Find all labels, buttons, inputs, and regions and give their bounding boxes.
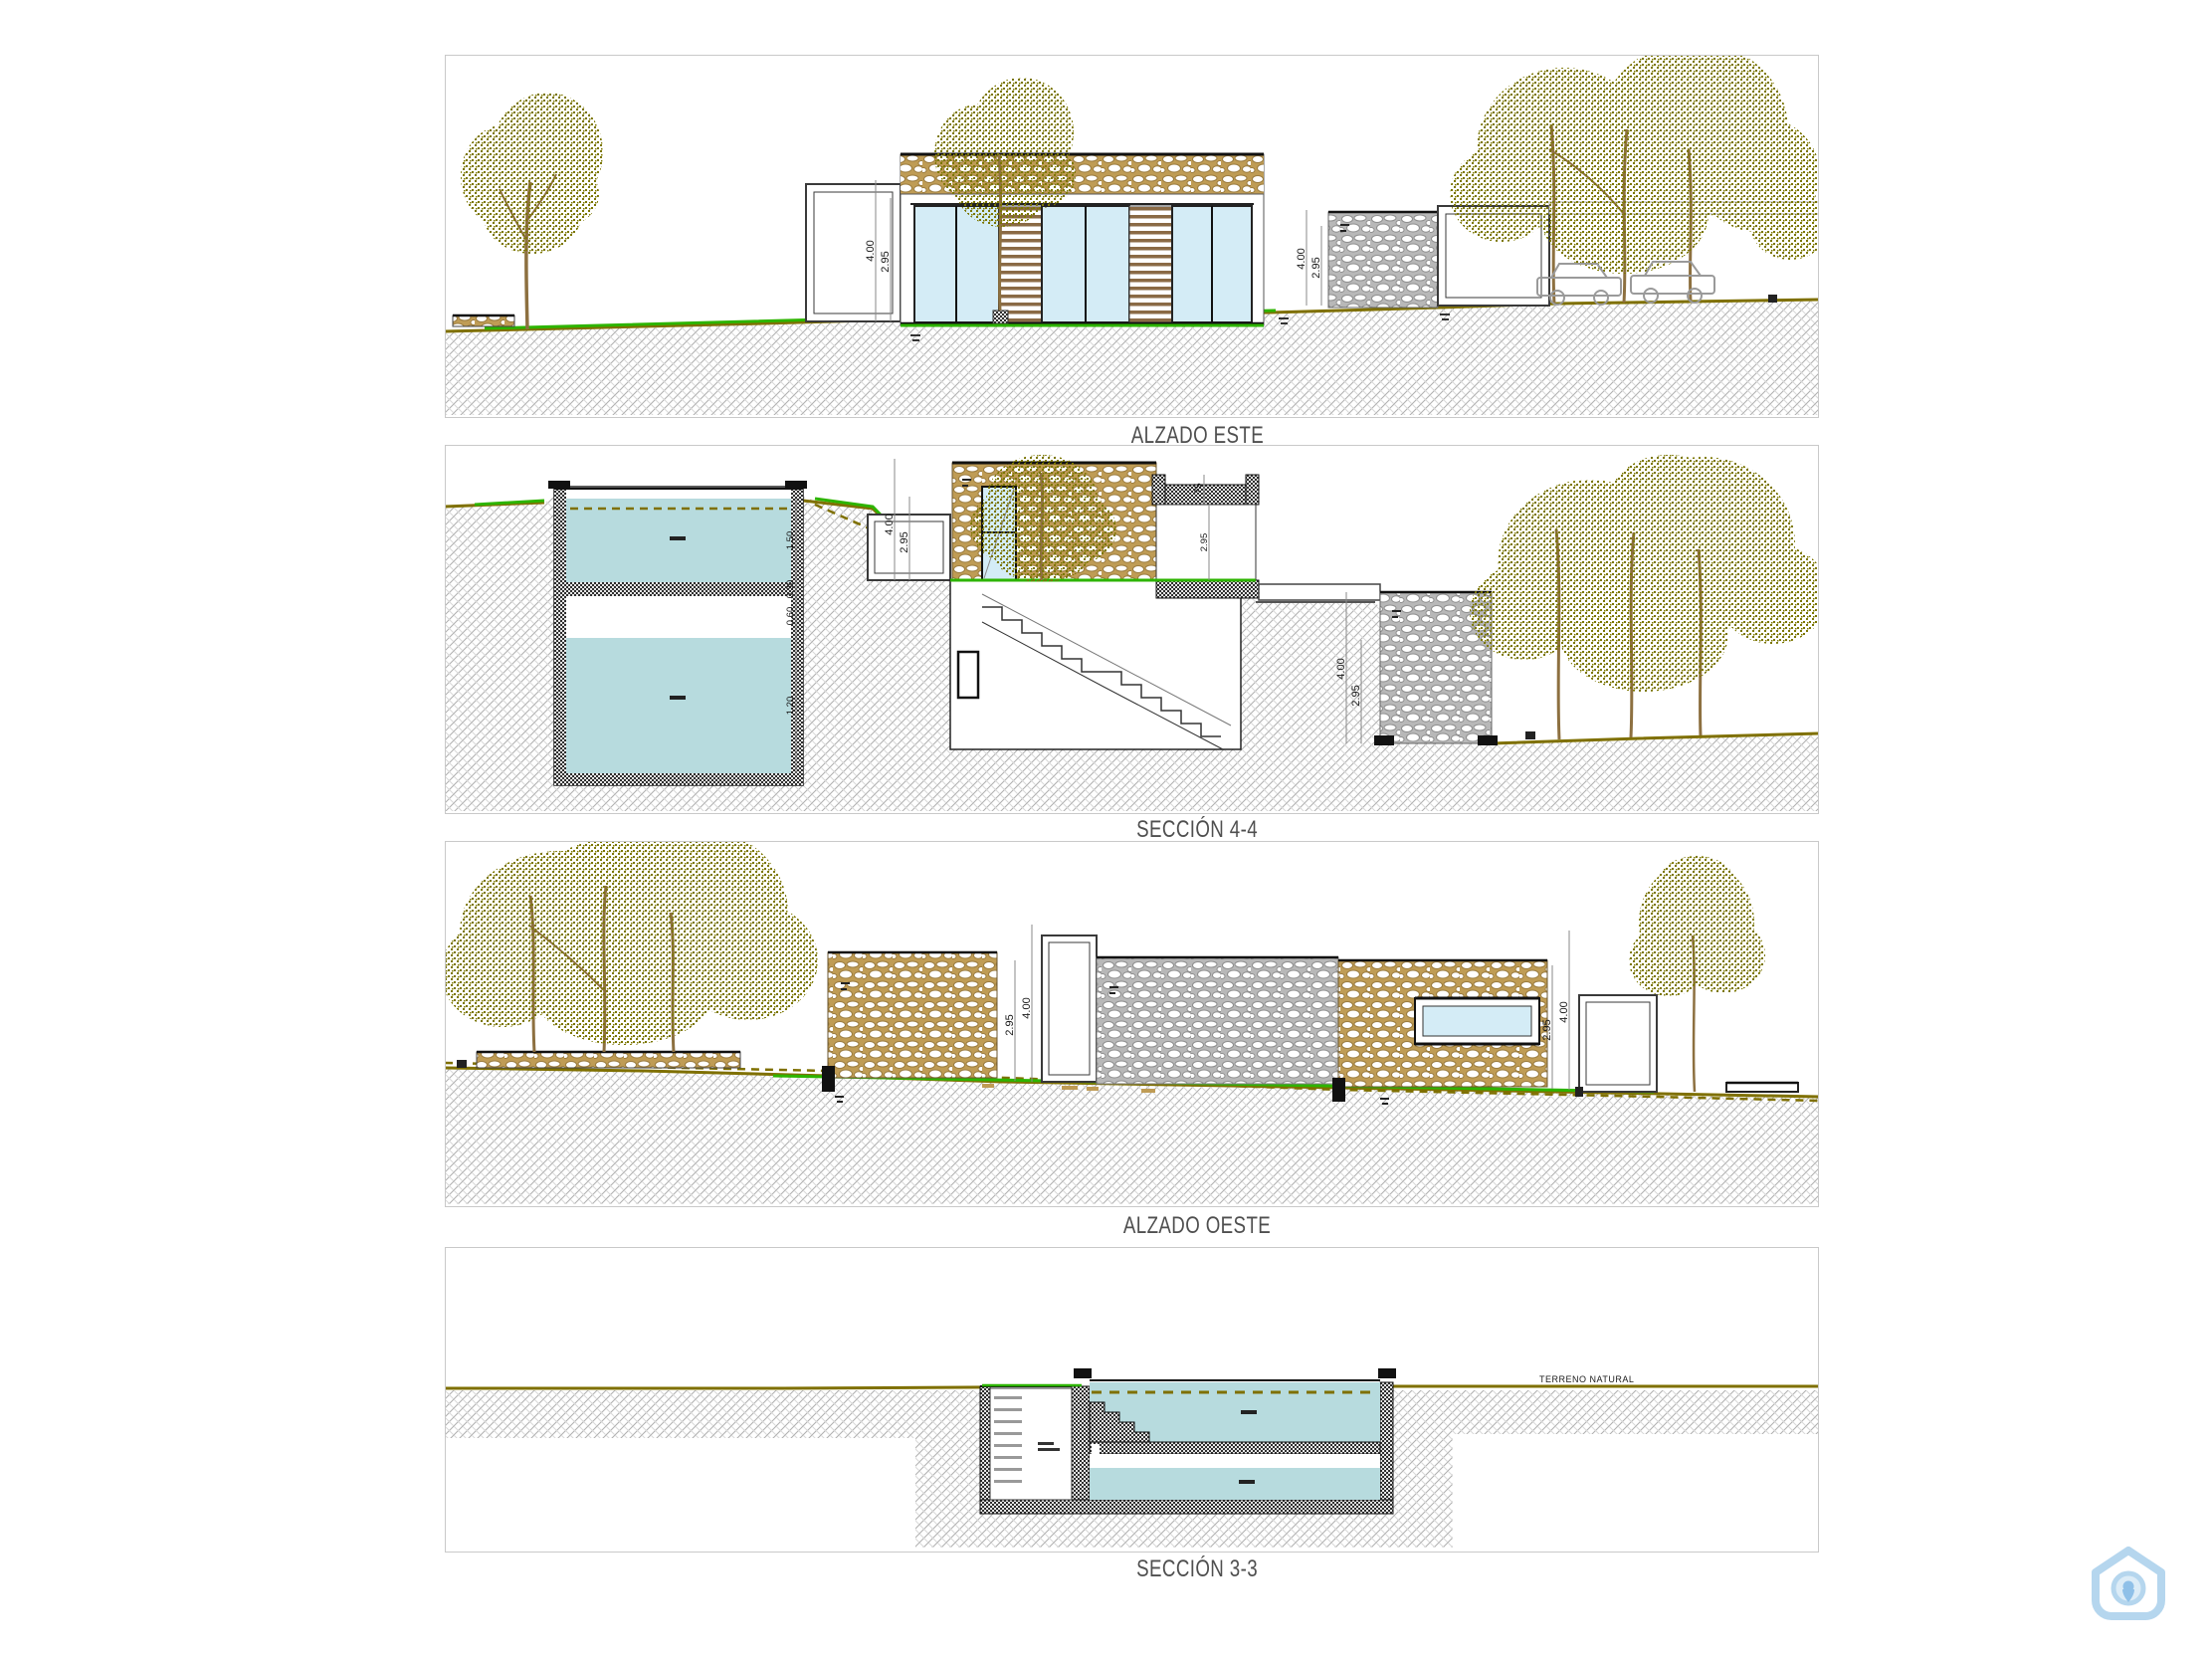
stone-wall-gray: [1097, 957, 1338, 1084]
floor-slab: [1156, 580, 1259, 598]
panel-alzado-este: 4.00 2.95: [445, 55, 1819, 418]
dimension-label: 1.50: [785, 531, 796, 550]
dimension-right: 4.00 2.95: [1296, 210, 1322, 306]
basement-section: [950, 580, 1241, 749]
drawing-sheet: 4.00 2.95: [0, 0, 2212, 1659]
panel-title: SECCIÓN 3-3: [510, 1555, 1885, 1583]
dimension-label: 2.95: [1310, 257, 1322, 278]
tree-planter: [993, 311, 1008, 323]
watermark-logo-icon: [2086, 1539, 2171, 1624]
dimension-label: 4.00: [1335, 658, 1347, 679]
roof-slab: [1156, 485, 1256, 505]
machine-chamber: [990, 1388, 1072, 1500]
window-glass: [1423, 1006, 1531, 1036]
bollard: [1768, 295, 1777, 303]
mid-slab: [1090, 1442, 1380, 1454]
bench-right: [1726, 1083, 1798, 1092]
seccion-3-3-drawing: TERRENO NATURAL: [445, 1247, 1819, 1553]
planter: [477, 1052, 740, 1068]
porch-frame: [1575, 995, 1657, 1097]
tree: [461, 93, 603, 329]
dimension-label: 4.00: [1558, 1001, 1570, 1022]
pool-section: [980, 1368, 1396, 1514]
dimension-label: 1.20: [785, 697, 796, 716]
dimension-label: 2.95: [880, 251, 892, 272]
tiny-label-mark: [670, 696, 686, 700]
panel-title: SECCIÓN 4-4: [510, 816, 1885, 844]
dimension-label: .75: [1193, 483, 1204, 496]
dimension-label: 2.95: [1004, 1014, 1016, 1035]
pool-upper: [1090, 1380, 1380, 1442]
dimension-label: 2.95: [1199, 533, 1210, 552]
porch-frame: [1042, 935, 1097, 1082]
seccion-4-4-drawing: 1.50 0.30 0.60 1.20 4.00 2.95: [445, 445, 1819, 814]
water-tank-section: 1.50 0.30 0.60 1.20: [548, 481, 807, 785]
bollard: [457, 1060, 467, 1068]
alzado-este-drawing: 4.00 2.95: [445, 55, 1819, 418]
dimension-label: 4.00: [1021, 997, 1033, 1018]
terrain-annotation: TERRENO NATURAL: [1539, 1374, 1634, 1384]
basement-niche: [958, 652, 978, 698]
dimension-label: 2.95: [899, 531, 910, 552]
tank-water-lower: [566, 638, 791, 773]
pool-lower: [1090, 1454, 1380, 1500]
dimension-label: 4.00: [865, 240, 877, 261]
tiny-label-mark: [1239, 1480, 1255, 1484]
tiny-label-mark: [1241, 1410, 1257, 1414]
panel-title: ALZADO OESTE: [510, 1212, 1885, 1240]
tiny-label-mark: [1038, 1442, 1054, 1445]
bench-left: [453, 315, 514, 326]
dimension-label: 2.95: [1541, 1019, 1553, 1040]
tiny-label-mark: [670, 536, 686, 540]
dimension-label: 0.60: [785, 607, 796, 626]
dimension-label: 0.30: [785, 580, 796, 599]
panel-alzado-oeste: 2.95 4.00 2.95 4.00: [445, 841, 1819, 1207]
tree-group: [1470, 455, 1819, 739]
panel-seccion-3-3: TERRENO NATURAL: [445, 1247, 1819, 1553]
dimension-label: 2.95: [1350, 685, 1362, 706]
tree-group: [445, 841, 818, 1052]
dimension-label: 4.00: [884, 514, 896, 534]
stone-wall-tan: [1332, 960, 1547, 1105]
tiny-label-mark: [1038, 1448, 1060, 1451]
panel-seccion-4-4: 1.50 0.30 0.60 1.20 4.00 2.95: [445, 445, 1819, 814]
bollard: [1525, 731, 1535, 739]
beam-band: [1259, 584, 1380, 600]
stone-pillar: [1328, 212, 1438, 308]
alzado-oeste-drawing: 2.95 4.00 2.95 4.00: [445, 841, 1819, 1207]
dimension-mid: 2.95 4.00: [1004, 925, 1033, 1082]
slat-screen: [1129, 206, 1172, 322]
dimension-label: 4.00: [1296, 248, 1307, 269]
